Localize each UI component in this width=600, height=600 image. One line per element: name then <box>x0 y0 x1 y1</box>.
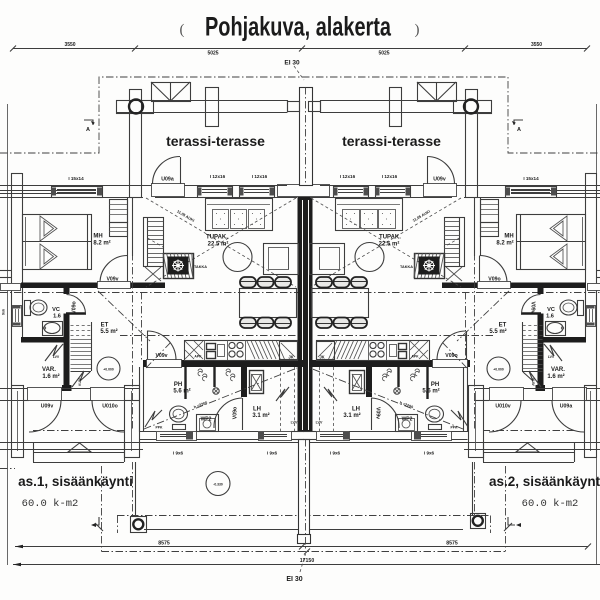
svg-text:LVV: LVV <box>548 355 555 359</box>
svg-text:U09v: U09v <box>41 404 54 410</box>
svg-text:I 15x14: I 15x14 <box>68 176 84 181</box>
svg-text:h =2200: h =2200 <box>193 401 208 410</box>
svg-text:9x6: 9x6 <box>2 309 6 315</box>
svg-text:V09o: V09o <box>233 407 239 419</box>
svg-text:11,05 AUKI: 11,05 AUKI <box>176 209 195 222</box>
svg-text:U09v: U09v <box>433 177 446 183</box>
svg-text:-0.330: -0.330 <box>213 482 223 486</box>
svg-text:VAR.: VAR. <box>42 367 56 373</box>
svg-text:PH: PH <box>431 382 439 388</box>
svg-text:TUPAK.: TUPAK. <box>379 235 401 241</box>
svg-text:5.5 m²: 5.5 m² <box>100 328 117 335</box>
svg-text:V09v: V09v <box>530 301 536 313</box>
svg-text:5.6 m²: 5.6 m² <box>173 388 190 395</box>
svg-text:): ) <box>415 22 420 38</box>
svg-text:Pohjakuva, alakerta: Pohjakuva, alakerta <box>205 12 392 42</box>
svg-text:I 9x6: I 9x6 <box>330 451 341 456</box>
svg-text:V09o: V09o <box>72 301 78 313</box>
svg-text:3550: 3550 <box>64 42 75 48</box>
svg-text:LH: LH <box>253 407 261 413</box>
svg-text:TAKKA: TAKKA <box>400 265 413 269</box>
svg-text:U09a: U09a <box>161 177 174 183</box>
svg-text:V09v: V09v <box>155 353 167 359</box>
svg-text:PPK: PPK <box>451 426 459 430</box>
svg-text:17150: 17150 <box>300 558 315 564</box>
svg-text:I 12x16: I 12x16 <box>382 174 398 179</box>
svg-text:I 9x6: I 9x6 <box>424 451 435 456</box>
svg-text:1.6: 1.6 <box>546 314 554 320</box>
svg-text:U010v: U010v <box>495 404 510 410</box>
svg-text:APK: APK <box>194 355 202 359</box>
svg-text:LH: LH <box>352 407 360 413</box>
svg-text:ET: ET <box>101 323 109 329</box>
svg-text:as.1, sisäänkäynti: as.1, sisäänkäynti <box>18 474 133 489</box>
svg-text:JK: JK <box>319 355 324 360</box>
svg-text:60.0 k-m2: 60.0 k-m2 <box>22 498 79 510</box>
svg-text:MH: MH <box>504 234 513 240</box>
svg-text:5.6 m²: 5.6 m² <box>422 388 439 395</box>
svg-text:KUIV: KUIV <box>531 378 535 386</box>
svg-text:EI 30: EI 30 <box>284 60 300 67</box>
svg-text:I 15x14: I 15x14 <box>523 176 539 181</box>
svg-text:KUIV: KUIV <box>78 377 82 385</box>
svg-text:terassi-terasse: terassi-terasse <box>342 133 441 149</box>
svg-text:TUPAK.: TUPAK. <box>206 235 228 241</box>
svg-text:A: A <box>517 127 521 133</box>
svg-text:WP2: WP2 <box>201 417 212 423</box>
svg-text:h =2200: h =2200 <box>399 401 414 410</box>
svg-text:APK: APK <box>411 355 419 359</box>
svg-text:LVV: LVV <box>291 421 298 425</box>
svg-text:V09o: V09o <box>488 277 500 283</box>
svg-text:3.1 m²: 3.1 m² <box>343 412 360 419</box>
svg-text:LVV: LVV <box>53 355 60 359</box>
svg-text:8.2 m²: 8.2 m² <box>496 240 513 247</box>
svg-text:U09a: U09a <box>560 404 573 410</box>
svg-text:11,05 AUKI: 11,05 AUKI <box>412 209 431 222</box>
svg-text:JK: JK <box>288 355 293 360</box>
svg-text:I 9x6: I 9x6 <box>173 451 184 456</box>
svg-text:1.6 m²: 1.6 m² <box>42 373 59 380</box>
svg-text:VC: VC <box>52 307 60 313</box>
svg-text:3.1 m²: 3.1 m² <box>252 412 269 419</box>
svg-text:EI 30: EI 30 <box>286 576 302 583</box>
svg-text:I 12x16: I 12x16 <box>252 174 268 179</box>
svg-text:5.5 m²: 5.5 m² <box>489 328 506 335</box>
svg-text:TAKKA: TAKKA <box>194 265 207 269</box>
svg-text:V09v: V09v <box>375 407 381 419</box>
svg-text:8575: 8575 <box>446 541 458 547</box>
svg-text:VAR.: VAR. <box>551 367 565 373</box>
svg-text:5025: 5025 <box>207 51 218 57</box>
svg-text:60.0 k-m2: 60.0 k-m2 <box>522 498 579 510</box>
svg-text:as.2, sisäänkäynti: as.2, sisäänkäynti <box>489 474 600 489</box>
svg-text:8575: 8575 <box>158 541 170 547</box>
svg-text:+0.000: +0.000 <box>493 367 504 371</box>
svg-text:8.2 m²: 8.2 m² <box>93 240 110 247</box>
svg-text:V09v: V09v <box>106 277 118 283</box>
svg-text:U010o: U010o <box>102 404 118 410</box>
svg-text:MH: MH <box>93 234 102 240</box>
svg-text:WP2: WP2 <box>402 417 413 423</box>
svg-text:PH: PH <box>174 382 182 388</box>
svg-text:A: A <box>86 127 90 133</box>
svg-text:ET: ET <box>499 323 507 329</box>
svg-text:I 9x6: I 9x6 <box>267 451 278 456</box>
svg-text:22.5 m²: 22.5 m² <box>379 241 400 248</box>
svg-text:3550: 3550 <box>531 42 542 48</box>
svg-text:(: ( <box>180 22 185 38</box>
svg-text:+0.000: +0.000 <box>103 367 114 371</box>
svg-text:I 12x16: I 12x16 <box>210 174 226 179</box>
svg-text:PPK: PPK <box>156 426 164 430</box>
svg-text:22.5 m²: 22.5 m² <box>208 241 229 248</box>
svg-text:1.6 m²: 1.6 m² <box>547 373 564 380</box>
svg-text:VC: VC <box>547 307 555 313</box>
svg-text:5025: 5025 <box>378 51 389 57</box>
svg-text:terassi-terasse: terassi-terasse <box>166 133 265 149</box>
svg-text:I 12x16: I 12x16 <box>340 174 356 179</box>
svg-text:LVV: LVV <box>316 421 323 425</box>
svg-text:1.6: 1.6 <box>53 314 61 320</box>
svg-text:V09o: V09o <box>445 353 457 359</box>
